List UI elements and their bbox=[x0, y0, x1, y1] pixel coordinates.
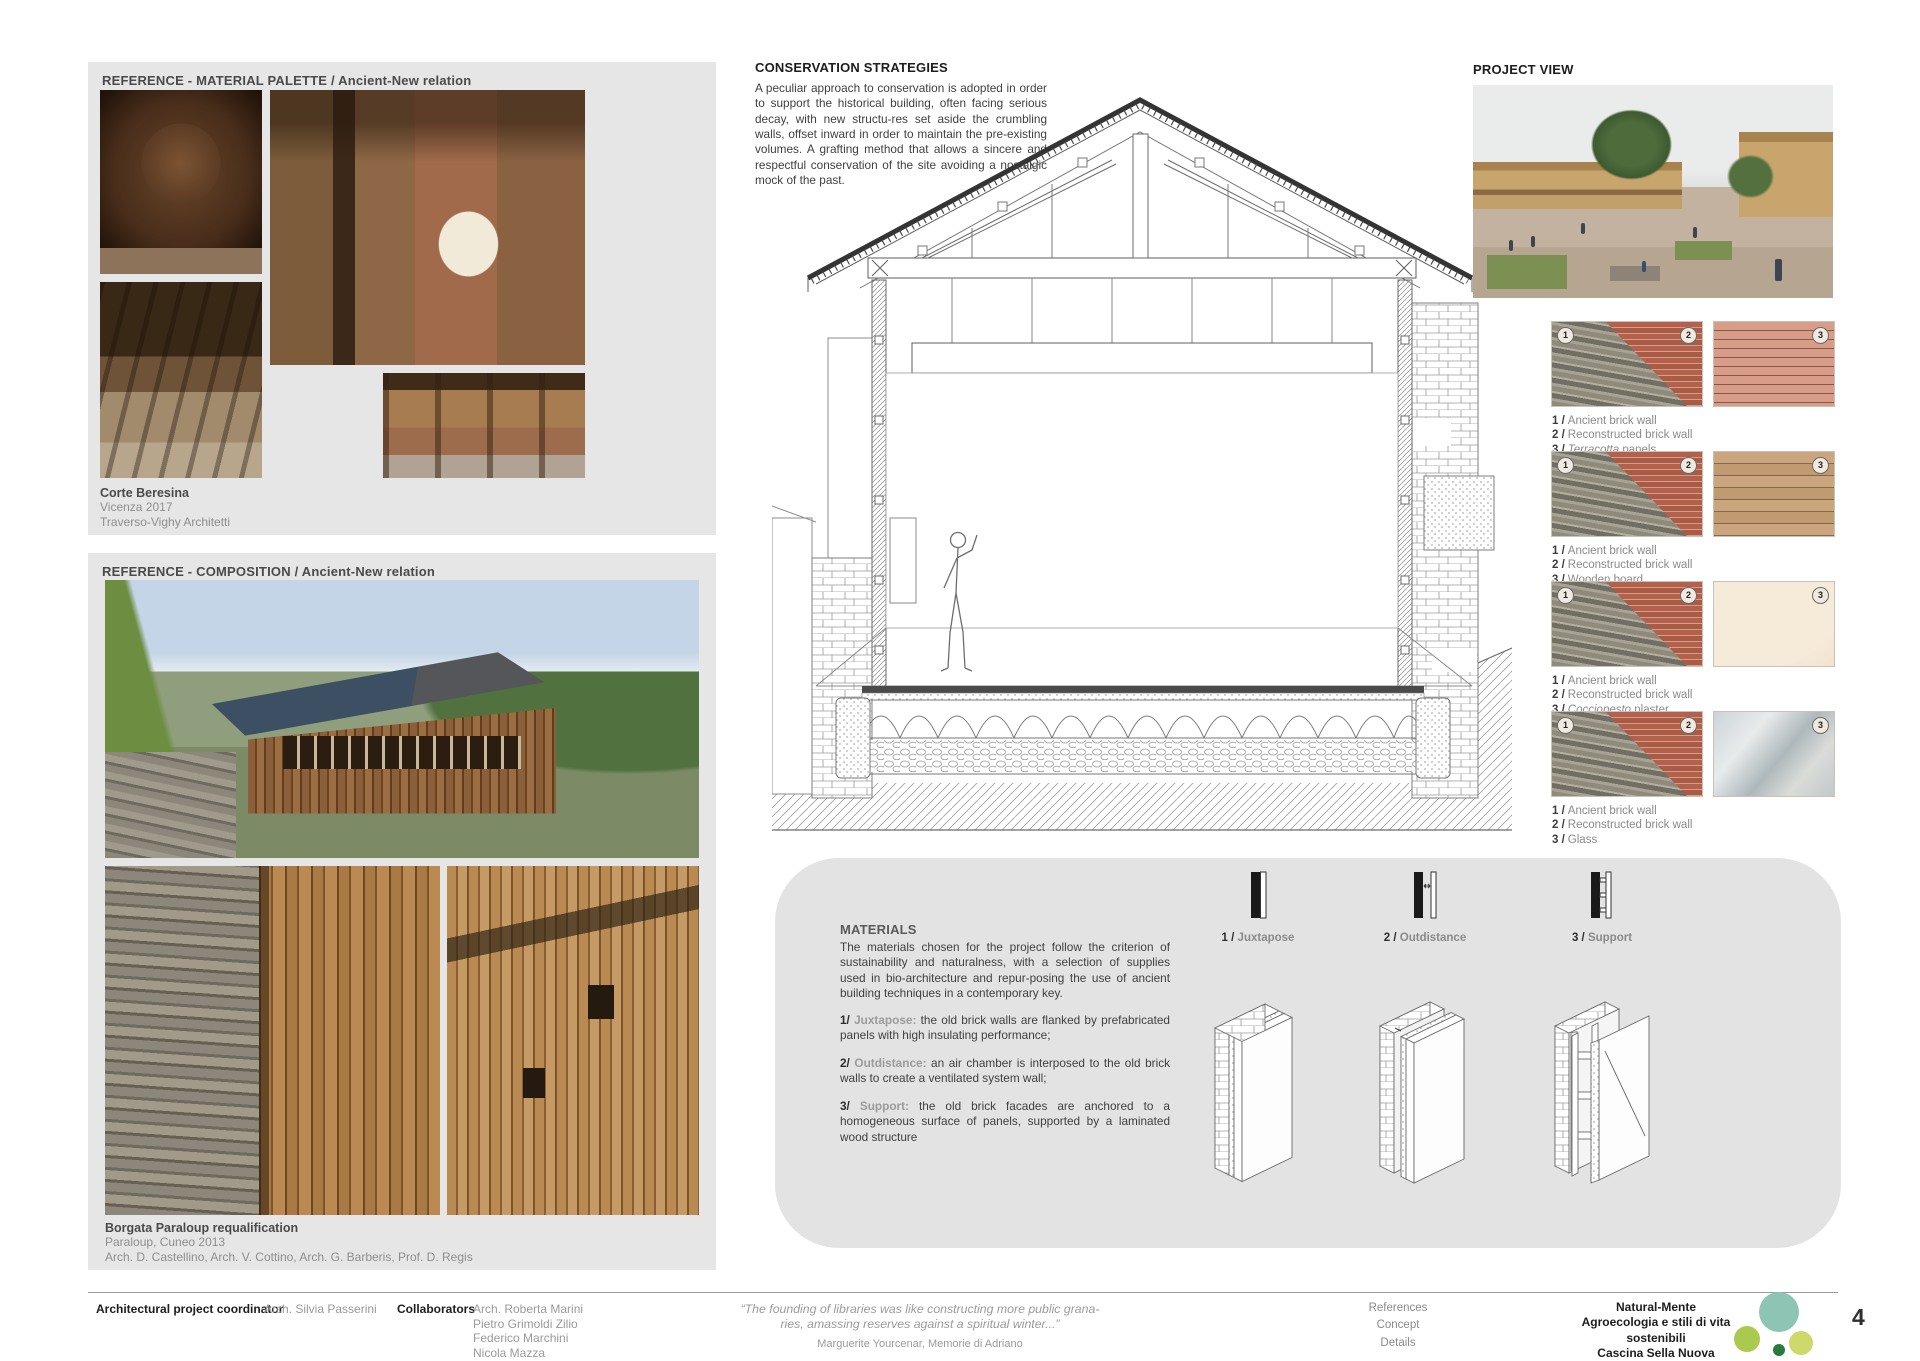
glass-swatch: 3 bbox=[1714, 712, 1834, 796]
badge-1: 1 bbox=[1557, 327, 1574, 344]
green-circles-logo bbox=[1728, 1292, 1820, 1356]
presentation-board-page: { "colors": { "panel_grey": "#e6e6e6", "… bbox=[0, 0, 1920, 1356]
quote-attribution: Marguerite Yourcenar, Memorie di Adriano bbox=[730, 1338, 1110, 1350]
reference-material-panel: REFERENCE - MATERIAL PALETTE / Ancient-N… bbox=[88, 62, 716, 535]
person-mark bbox=[1693, 227, 1697, 238]
badge-2: 2 bbox=[1680, 457, 1697, 474]
project-view-title: PROJECT VIEW bbox=[1473, 62, 1574, 77]
footer-divider bbox=[88, 1292, 1838, 1293]
building-section-drawing bbox=[772, 88, 1512, 858]
sample-caption: 1 /Ancient brick wall 2 /Reconstructed b… bbox=[1552, 414, 1692, 457]
reference-composition-title: REFERENCE - COMPOSITION / Ancient-New re… bbox=[102, 564, 435, 579]
quote-line: “The founding of libraries was like cons… bbox=[730, 1302, 1110, 1317]
collaborator-name: Nicola Mazza bbox=[473, 1346, 583, 1361]
caption-place-year: Vicenza 2017 bbox=[100, 500, 230, 515]
photo-paraloup-hamlet bbox=[105, 580, 699, 858]
sample-caption: 1 /Ancient brick wall 2 /Reconstructed b… bbox=[1552, 804, 1692, 847]
project-name: Natural-Mente bbox=[1558, 1300, 1754, 1315]
reference-material-caption: Corte Beresina Vicenza 2017 Traverso-Vig… bbox=[100, 486, 230, 529]
photo-brick-wood-interior bbox=[270, 90, 585, 365]
person-mark bbox=[1531, 236, 1535, 247]
tree-shape bbox=[1570, 98, 1692, 209]
quote-line: ries, amassing reserves against a spirit… bbox=[730, 1317, 1110, 1332]
window-shape bbox=[588, 985, 614, 1019]
terracotta-swatch: 3 bbox=[1714, 322, 1834, 406]
reference-composition-panel: REFERENCE - COMPOSITION / Ancient-New re… bbox=[88, 553, 716, 1270]
outdistance-axon-diagram bbox=[1370, 956, 1490, 1186]
tree-shape bbox=[1711, 140, 1790, 212]
ancient-brick-swatch: 1 2 bbox=[1552, 582, 1702, 666]
stone-house-shape bbox=[105, 752, 236, 858]
materials-item-1: 1/ Juxtapose: the old brick walls are fl… bbox=[840, 1013, 1170, 1044]
reference-composition-caption: Borgata Paraloup requalification Paralou… bbox=[105, 1221, 473, 1264]
bench-shape bbox=[1610, 266, 1660, 281]
juxtapose-axon-diagram bbox=[1203, 956, 1323, 1186]
caption-architects: Traverso-Vighy Architetti bbox=[100, 515, 230, 530]
ancient-brick-swatch: 1 2 bbox=[1552, 712, 1702, 796]
window-band bbox=[283, 736, 521, 769]
ancient-brick-swatch: 1 2 bbox=[1552, 322, 1702, 406]
footer-nav: References Concept Details bbox=[1348, 1300, 1448, 1352]
materials-item-3: 3/ Support: the old brick facades are an… bbox=[840, 1099, 1170, 1145]
coordinator-name: Arch. Silvia Passerini bbox=[264, 1302, 377, 1317]
cocciopesto-plaster-swatch: 3 bbox=[1714, 582, 1834, 666]
collaborator-name: Arch. Roberta Marini bbox=[473, 1302, 583, 1317]
person-mark bbox=[1775, 259, 1782, 281]
caption-place-year: Paraloup, Cuneo 2013 bbox=[105, 1235, 473, 1250]
support-plan-icon bbox=[1589, 868, 1615, 926]
collaborators-list: Arch. Roberta Marini Pietro Grimoldi Zil… bbox=[473, 1302, 583, 1361]
project-location: Cascina Sella Nuova bbox=[1558, 1346, 1754, 1361]
sample-caption: 1 /Ancient brick wall 2 /Reconstructed b… bbox=[1552, 544, 1692, 587]
ancient-brick-swatch: 1 2 bbox=[1552, 452, 1702, 536]
project-view-render bbox=[1473, 85, 1833, 298]
collaborator-name: Pietro Grimoldi Zilio bbox=[473, 1317, 583, 1332]
badge-1: 1 bbox=[1557, 457, 1574, 474]
photo-wood-colonnade bbox=[383, 373, 585, 478]
grass-patch bbox=[1675, 241, 1733, 260]
sample-caption: 1 /Ancient brick wall 2 /Reconstructed b… bbox=[1552, 674, 1692, 717]
badge-1: 1 bbox=[1557, 717, 1574, 734]
page-number: 4 bbox=[1852, 1304, 1865, 1331]
person-mark bbox=[1509, 240, 1513, 251]
badge-3: 3 bbox=[1812, 587, 1829, 604]
material-sample-group-1: 1 2 3 1 /Ancient brick wall 2 /Reconstru… bbox=[1552, 322, 1834, 450]
photo-arch-wood-detail bbox=[270, 373, 375, 478]
badge-1: 1 bbox=[1557, 587, 1574, 604]
material-sample-group-4: 1 2 3 1 /Ancient brick wall 2 /Reconstru… bbox=[1552, 712, 1834, 840]
juxtapose-plan-icon bbox=[1245, 868, 1271, 926]
project-brand-block: Natural-Mente Agroecologia e stili di vi… bbox=[1558, 1300, 1754, 1361]
badge-3: 3 bbox=[1812, 457, 1829, 474]
footer-quote: “The founding of libraries was like cons… bbox=[730, 1302, 1110, 1350]
collaborators-label: Collaborators bbox=[397, 1302, 475, 1316]
material-sample-group-3: 1 2 3 1 /Ancient brick wall 2 /Reconstru… bbox=[1552, 582, 1834, 710]
nav-item-concept[interactable]: Concept bbox=[1348, 1317, 1448, 1334]
caption-project-name: Corte Beresina bbox=[100, 486, 230, 500]
reference-material-title: REFERENCE - MATERIAL PALETTE / Ancient-N… bbox=[102, 73, 471, 88]
coordinator-label: Architectural project coordinator bbox=[96, 1302, 283, 1316]
caption-project-name: Borgata Paraloup requalification bbox=[105, 1221, 473, 1235]
conservation-title: CONSERVATION STRATEGIES bbox=[755, 60, 1047, 75]
outdistance-plan-icon bbox=[1412, 868, 1438, 926]
person-mark bbox=[1642, 261, 1646, 272]
nav-item-references[interactable]: References bbox=[1348, 1300, 1448, 1317]
project-subtitle: Agroecologia e stili di vita sostenibili bbox=[1558, 1315, 1754, 1346]
badge-2: 2 bbox=[1680, 327, 1697, 344]
diagram-label-juxtapose: 1 / Juxtapose bbox=[1198, 932, 1318, 944]
material-sample-group-2: 1 2 3 1 /Ancient brick wall 2 /Reconstru… bbox=[1552, 452, 1834, 580]
grass-patch bbox=[1487, 255, 1566, 289]
window-shape bbox=[523, 1068, 545, 1098]
person-mark bbox=[1581, 223, 1585, 234]
collaborator-name: Federico Marchini bbox=[473, 1331, 583, 1346]
materials-item-2: 2/ Outdistance: an air chamber is interp… bbox=[840, 1056, 1170, 1087]
photo-wood-slat-house bbox=[447, 866, 699, 1215]
badge-3: 3 bbox=[1812, 717, 1829, 734]
badge-2: 2 bbox=[1680, 717, 1697, 734]
photo-dark-archway bbox=[100, 90, 262, 274]
materials-panel: MATERIALS The materials chosen for the p… bbox=[775, 858, 1841, 1248]
badge-2: 2 bbox=[1680, 587, 1697, 604]
caption-architects: Arch. D. Castellino, Arch. V. Cottino, A… bbox=[105, 1250, 473, 1265]
diagram-label-support: 3 / Support bbox=[1542, 932, 1662, 944]
materials-title: MATERIALS bbox=[840, 922, 917, 937]
nav-item-details[interactable]: Details bbox=[1348, 1335, 1448, 1352]
wooden-board-swatch: 3 bbox=[1714, 452, 1834, 536]
diagram-label-outdistance: 2 / Outdistance bbox=[1365, 932, 1485, 944]
materials-body: The materials chosen for the project fol… bbox=[840, 940, 1170, 1001]
photo-stone-wood-closeup bbox=[105, 866, 440, 1215]
photo-timber-roof-interior bbox=[100, 282, 262, 478]
support-axon-diagram bbox=[1547, 956, 1667, 1186]
badge-3: 3 bbox=[1812, 327, 1829, 344]
